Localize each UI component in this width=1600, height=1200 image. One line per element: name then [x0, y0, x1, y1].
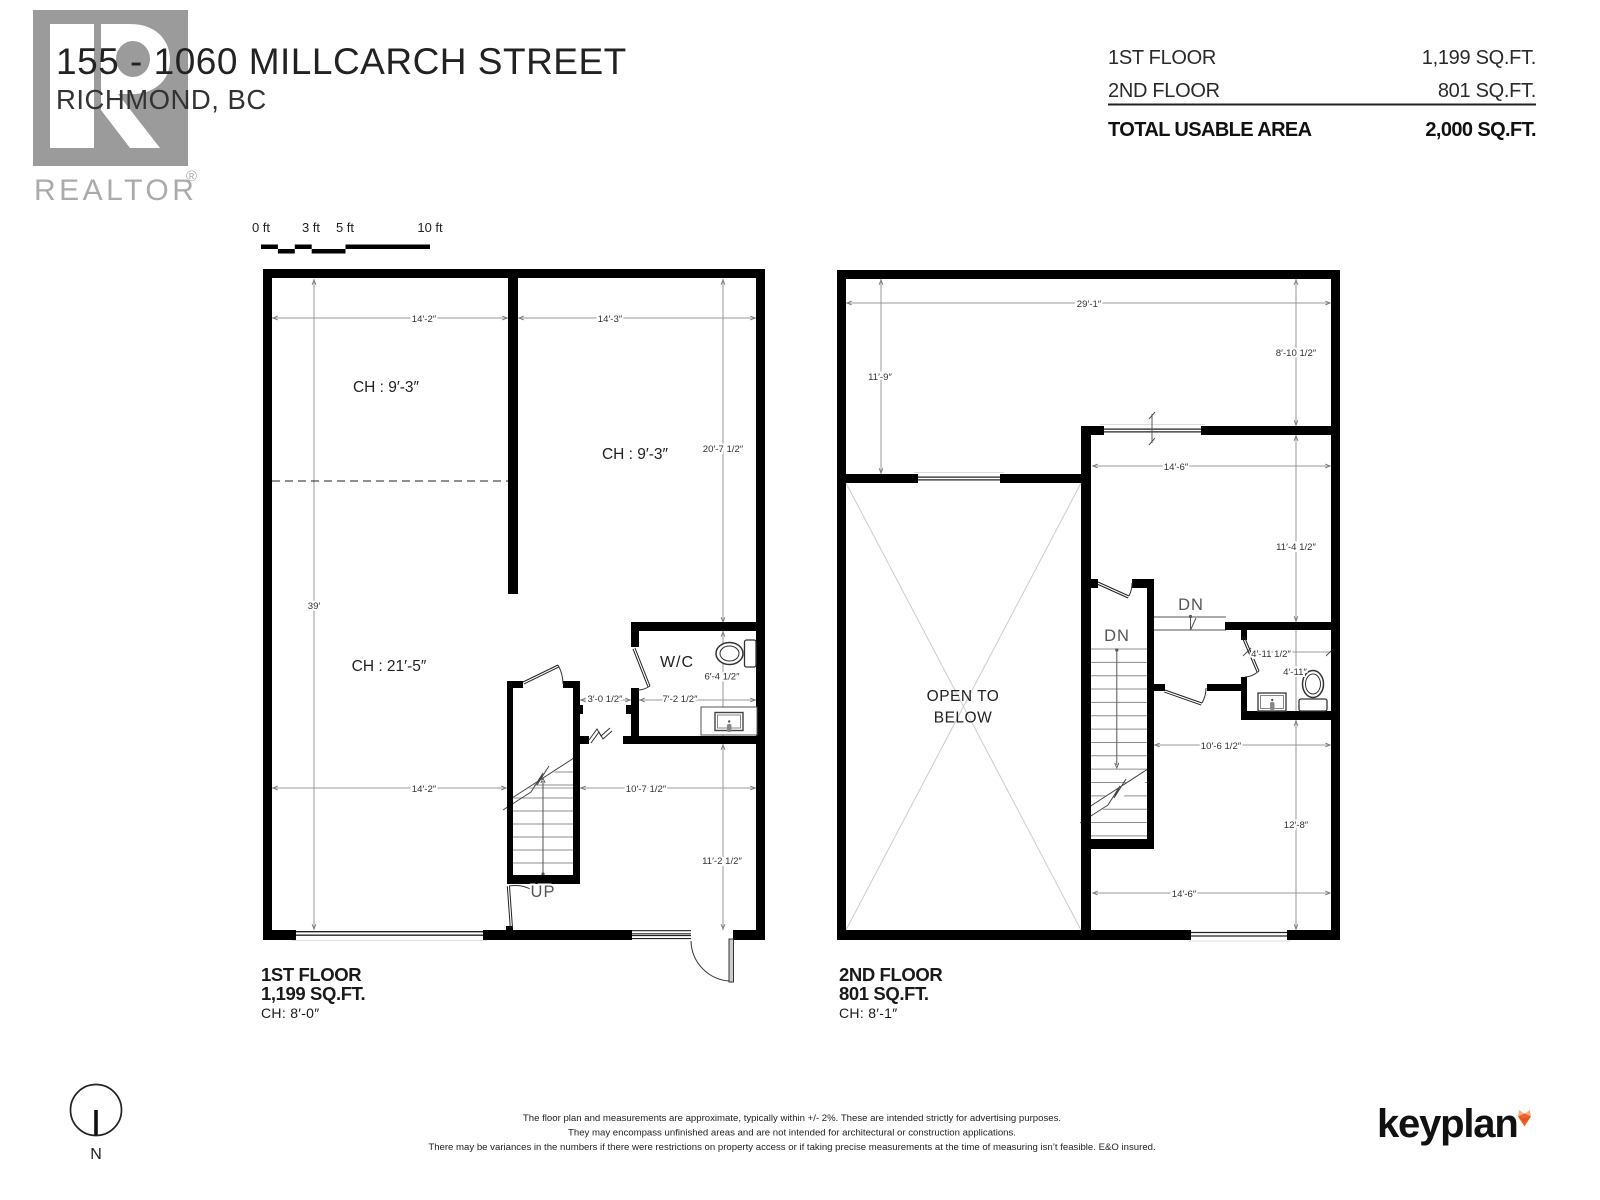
svg-text:20′-7 1/2″: 20′-7 1/2″: [703, 444, 744, 455]
svg-text:CH : 9′-3″: CH : 9′-3″: [602, 446, 669, 463]
svg-text:CH : 9′-3″: CH : 9′-3″: [353, 379, 420, 396]
svg-text:There may be variances in the: There may be variances in the numbers if…: [428, 1142, 1155, 1153]
svg-text:®: ®: [186, 168, 197, 185]
svg-text:2,000 SQ.FT.: 2,000 SQ.FT.: [1425, 119, 1536, 141]
svg-text:1,199 SQ.FT.: 1,199 SQ.FT.: [1422, 47, 1536, 69]
svg-text:3 ft: 3 ft: [302, 220, 320, 235]
svg-text:2ND FLOOR: 2ND FLOOR: [839, 964, 942, 985]
svg-text:11′-2 1/2″: 11′-2 1/2″: [702, 856, 742, 867]
svg-text:801 SQ.FT.: 801 SQ.FT.: [839, 983, 929, 1004]
svg-text:3′-0 1/2″: 3′-0 1/2″: [587, 694, 623, 705]
svg-text:0 ft: 0 ft: [252, 220, 270, 235]
svg-text:39′: 39′: [308, 601, 321, 612]
svg-text:CH: 8′-1″: CH: 8′-1″: [839, 1005, 898, 1021]
svg-text:29′-1″: 29′-1″: [1077, 299, 1102, 310]
svg-text:10 ft: 10 ft: [417, 220, 443, 235]
svg-text:14′-3″: 14′-3″: [598, 314, 623, 325]
svg-text:155 - 1060 MILLCARCH STREET: 155 - 1060 MILLCARCH STREET: [56, 41, 627, 82]
svg-text:keyplan: keyplan: [1377, 1102, 1518, 1146]
svg-text:1ST FLOOR: 1ST FLOOR: [1108, 47, 1216, 69]
svg-text:10′-7 1/2″: 10′-7 1/2″: [626, 784, 667, 795]
svg-text:14′-2″: 14′-2″: [412, 784, 437, 795]
svg-text:CH: 8′-0″: CH: 8′-0″: [261, 1005, 320, 1021]
svg-text:14′-2″: 14′-2″: [412, 314, 437, 325]
svg-text:14′-6″: 14′-6″: [1164, 462, 1189, 473]
svg-text:12′-8″: 12′-8″: [1284, 820, 1309, 831]
svg-text:2ND FLOOR: 2ND FLOOR: [1108, 80, 1220, 102]
svg-text:11′-9″: 11′-9″: [868, 372, 892, 383]
svg-text:The floor plan and measurement: The floor plan and measurements are appr…: [523, 1113, 1061, 1124]
svg-text:CH : 21′-5″: CH : 21′-5″: [352, 658, 427, 675]
svg-text:TOTAL USABLE AREA: TOTAL USABLE AREA: [1108, 119, 1312, 141]
svg-text:OPEN TO: OPEN TO: [927, 688, 1000, 705]
svg-text:UP: UP: [531, 883, 556, 901]
svg-text:8′-10 1/2″: 8′-10 1/2″: [1276, 348, 1317, 359]
svg-text:1ST FLOOR: 1ST FLOOR: [261, 964, 361, 985]
svg-text:14′-6″: 14′-6″: [1172, 889, 1197, 900]
svg-text:DN: DN: [1104, 627, 1130, 645]
svg-text:10′-6 1/2″: 10′-6 1/2″: [1201, 741, 1242, 752]
svg-text:7′-2 1/2″: 7′-2 1/2″: [662, 694, 698, 705]
svg-text:4′-11 1/2″: 4′-11 1/2″: [1251, 649, 1291, 660]
svg-text:W/C: W/C: [660, 654, 694, 671]
svg-text:DN: DN: [1178, 596, 1204, 614]
svg-text:6′-4 1/2″: 6′-4 1/2″: [704, 672, 740, 683]
svg-text:4′-11″: 4′-11″: [1283, 667, 1307, 678]
svg-text:11′-4 1/2″: 11′-4 1/2″: [1276, 542, 1316, 553]
svg-text:5 ft: 5 ft: [336, 220, 354, 235]
svg-text:1,199 SQ.FT.: 1,199 SQ.FT.: [261, 983, 365, 1004]
svg-text:N: N: [90, 1146, 102, 1163]
svg-text:BELOW: BELOW: [934, 710, 992, 727]
svg-text:801 SQ.FT.: 801 SQ.FT.: [1438, 80, 1536, 102]
svg-text:They may encompass unfinished: They may encompass unfinished areas and …: [568, 1128, 1016, 1139]
svg-text:REALTOR: REALTOR: [34, 174, 197, 207]
svg-text:RICHMOND, BC: RICHMOND, BC: [56, 84, 267, 115]
